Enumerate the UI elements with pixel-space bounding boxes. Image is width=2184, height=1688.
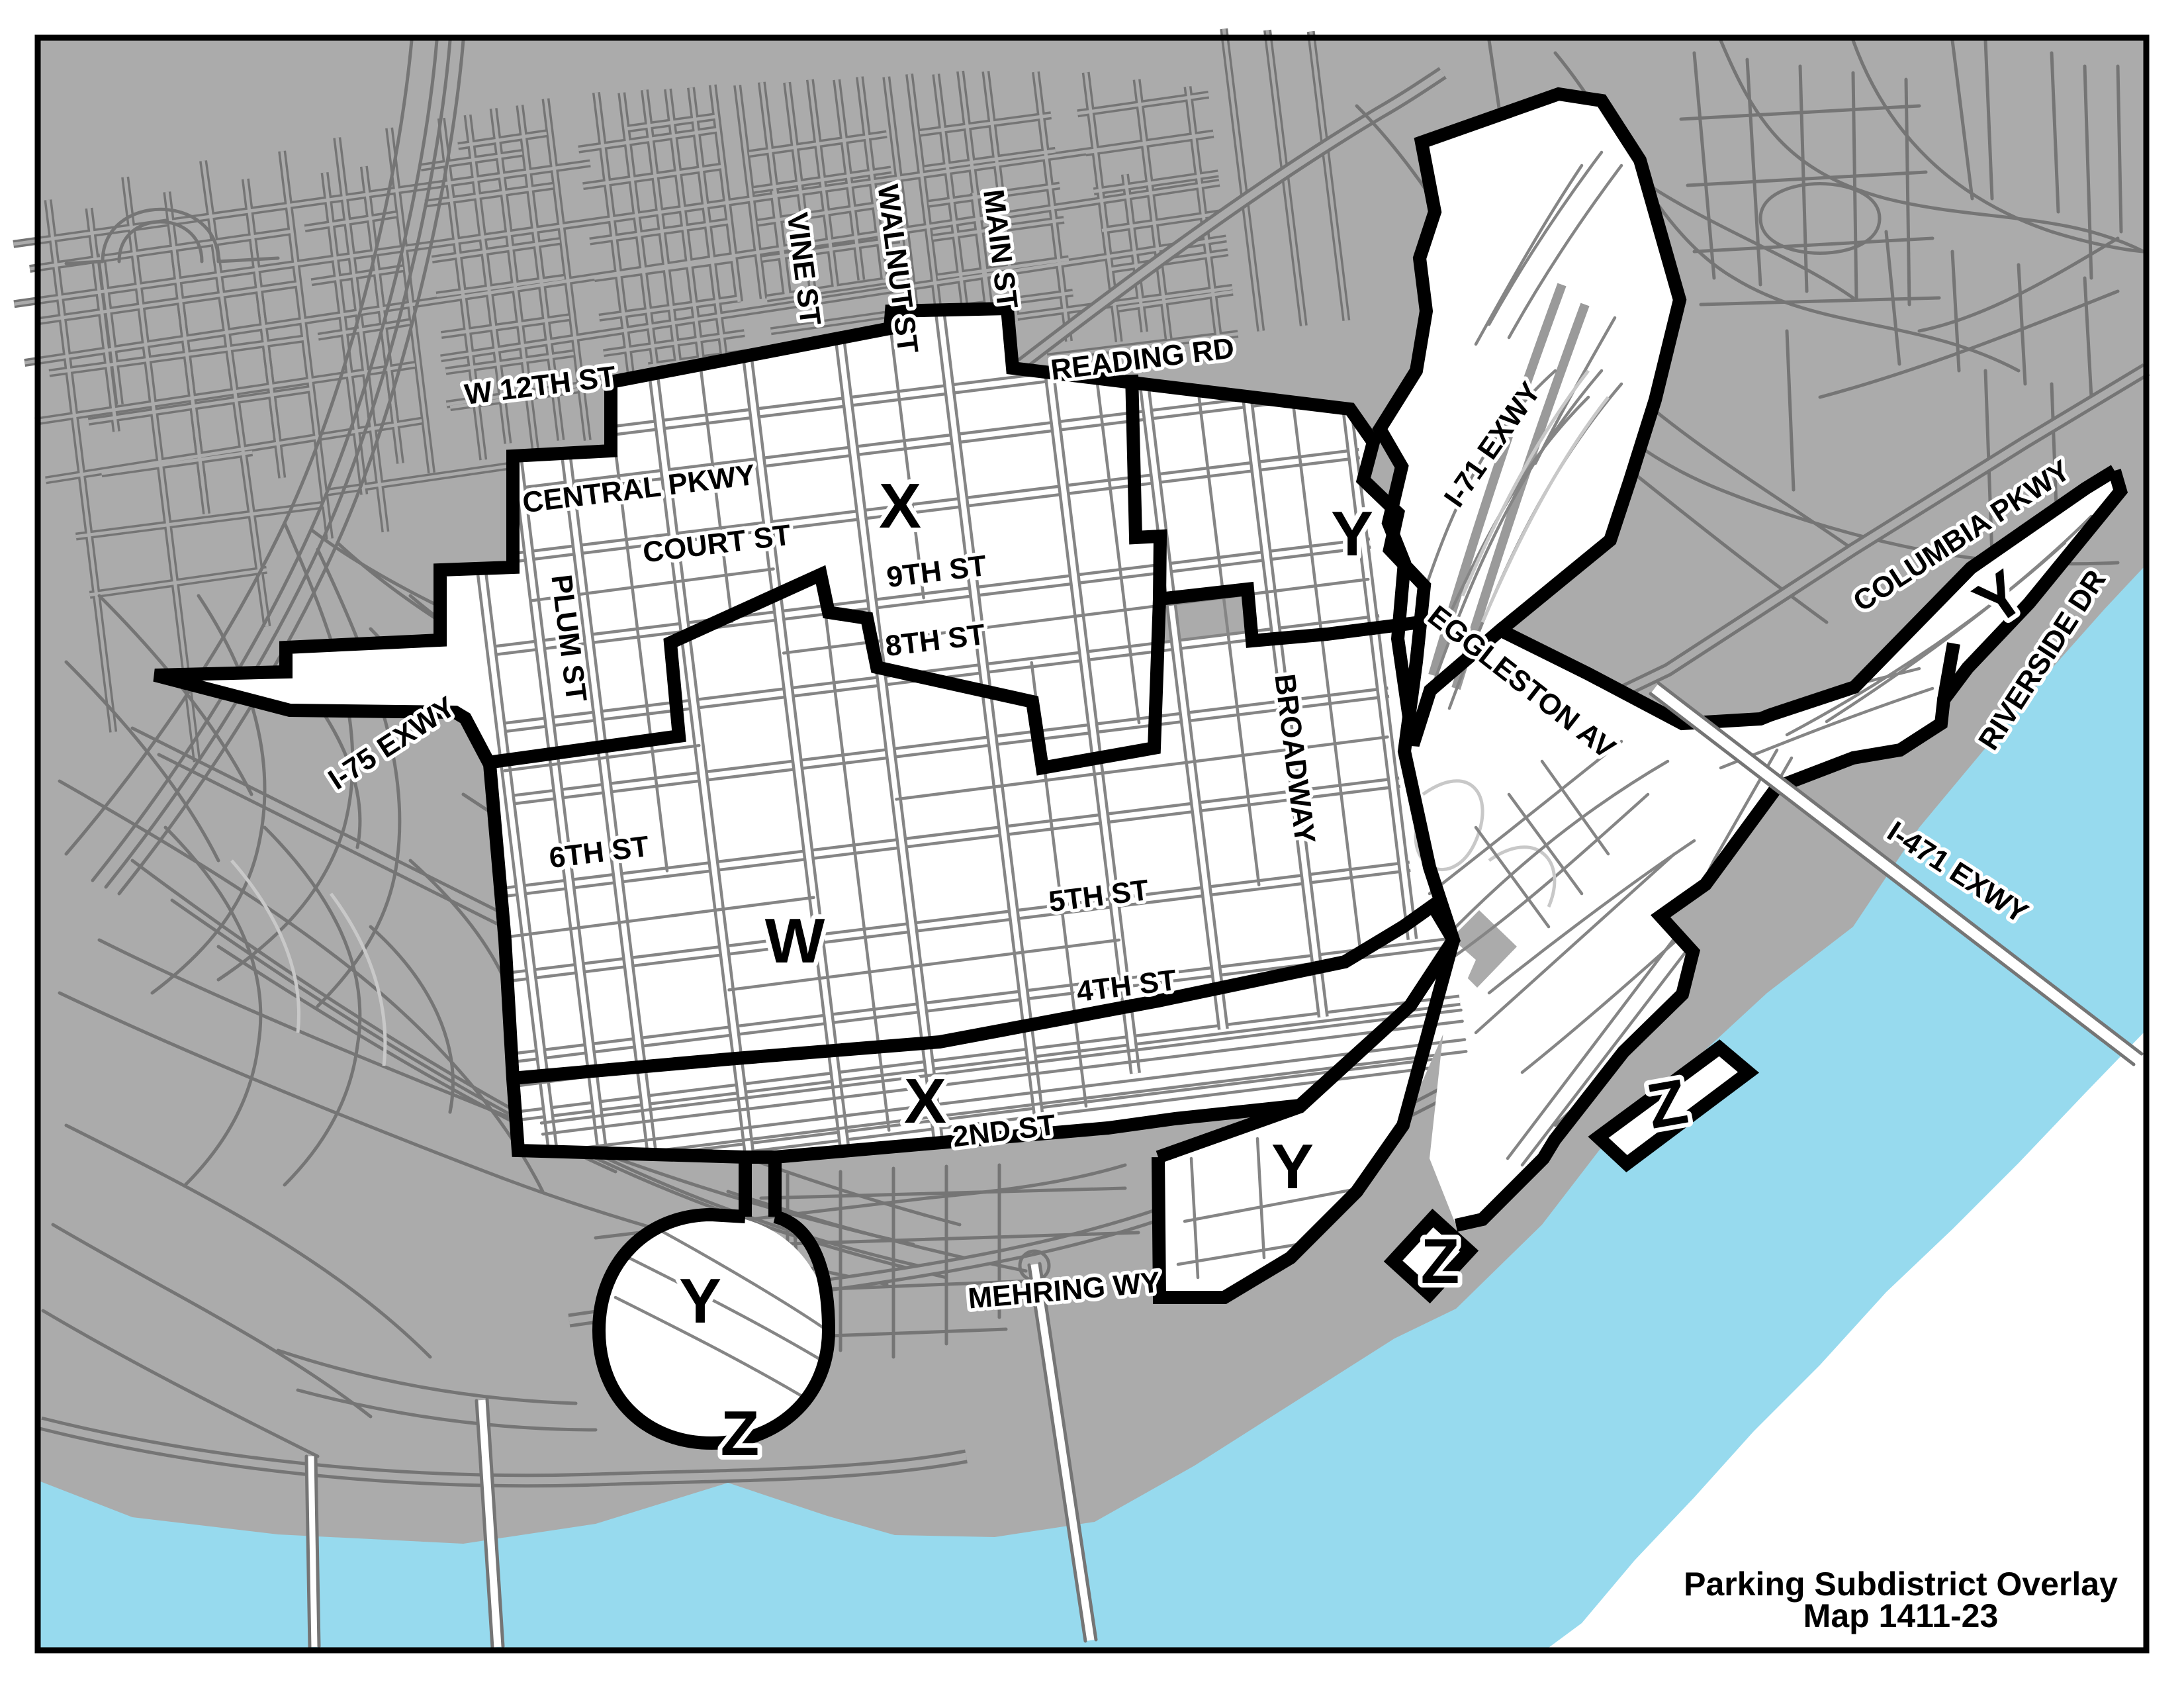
svg-text:Map 1411-23: Map 1411-23 xyxy=(1803,1597,1999,1634)
svg-text:W: W xyxy=(765,906,825,976)
svg-text:Y: Y xyxy=(1331,498,1373,569)
svg-text:Z: Z xyxy=(721,1398,760,1469)
svg-text:X: X xyxy=(879,471,921,541)
svg-text:Z: Z xyxy=(1421,1226,1460,1297)
svg-text:Y: Y xyxy=(1271,1131,1314,1202)
svg-text:Y: Y xyxy=(679,1266,721,1336)
svg-text:X: X xyxy=(904,1066,946,1137)
